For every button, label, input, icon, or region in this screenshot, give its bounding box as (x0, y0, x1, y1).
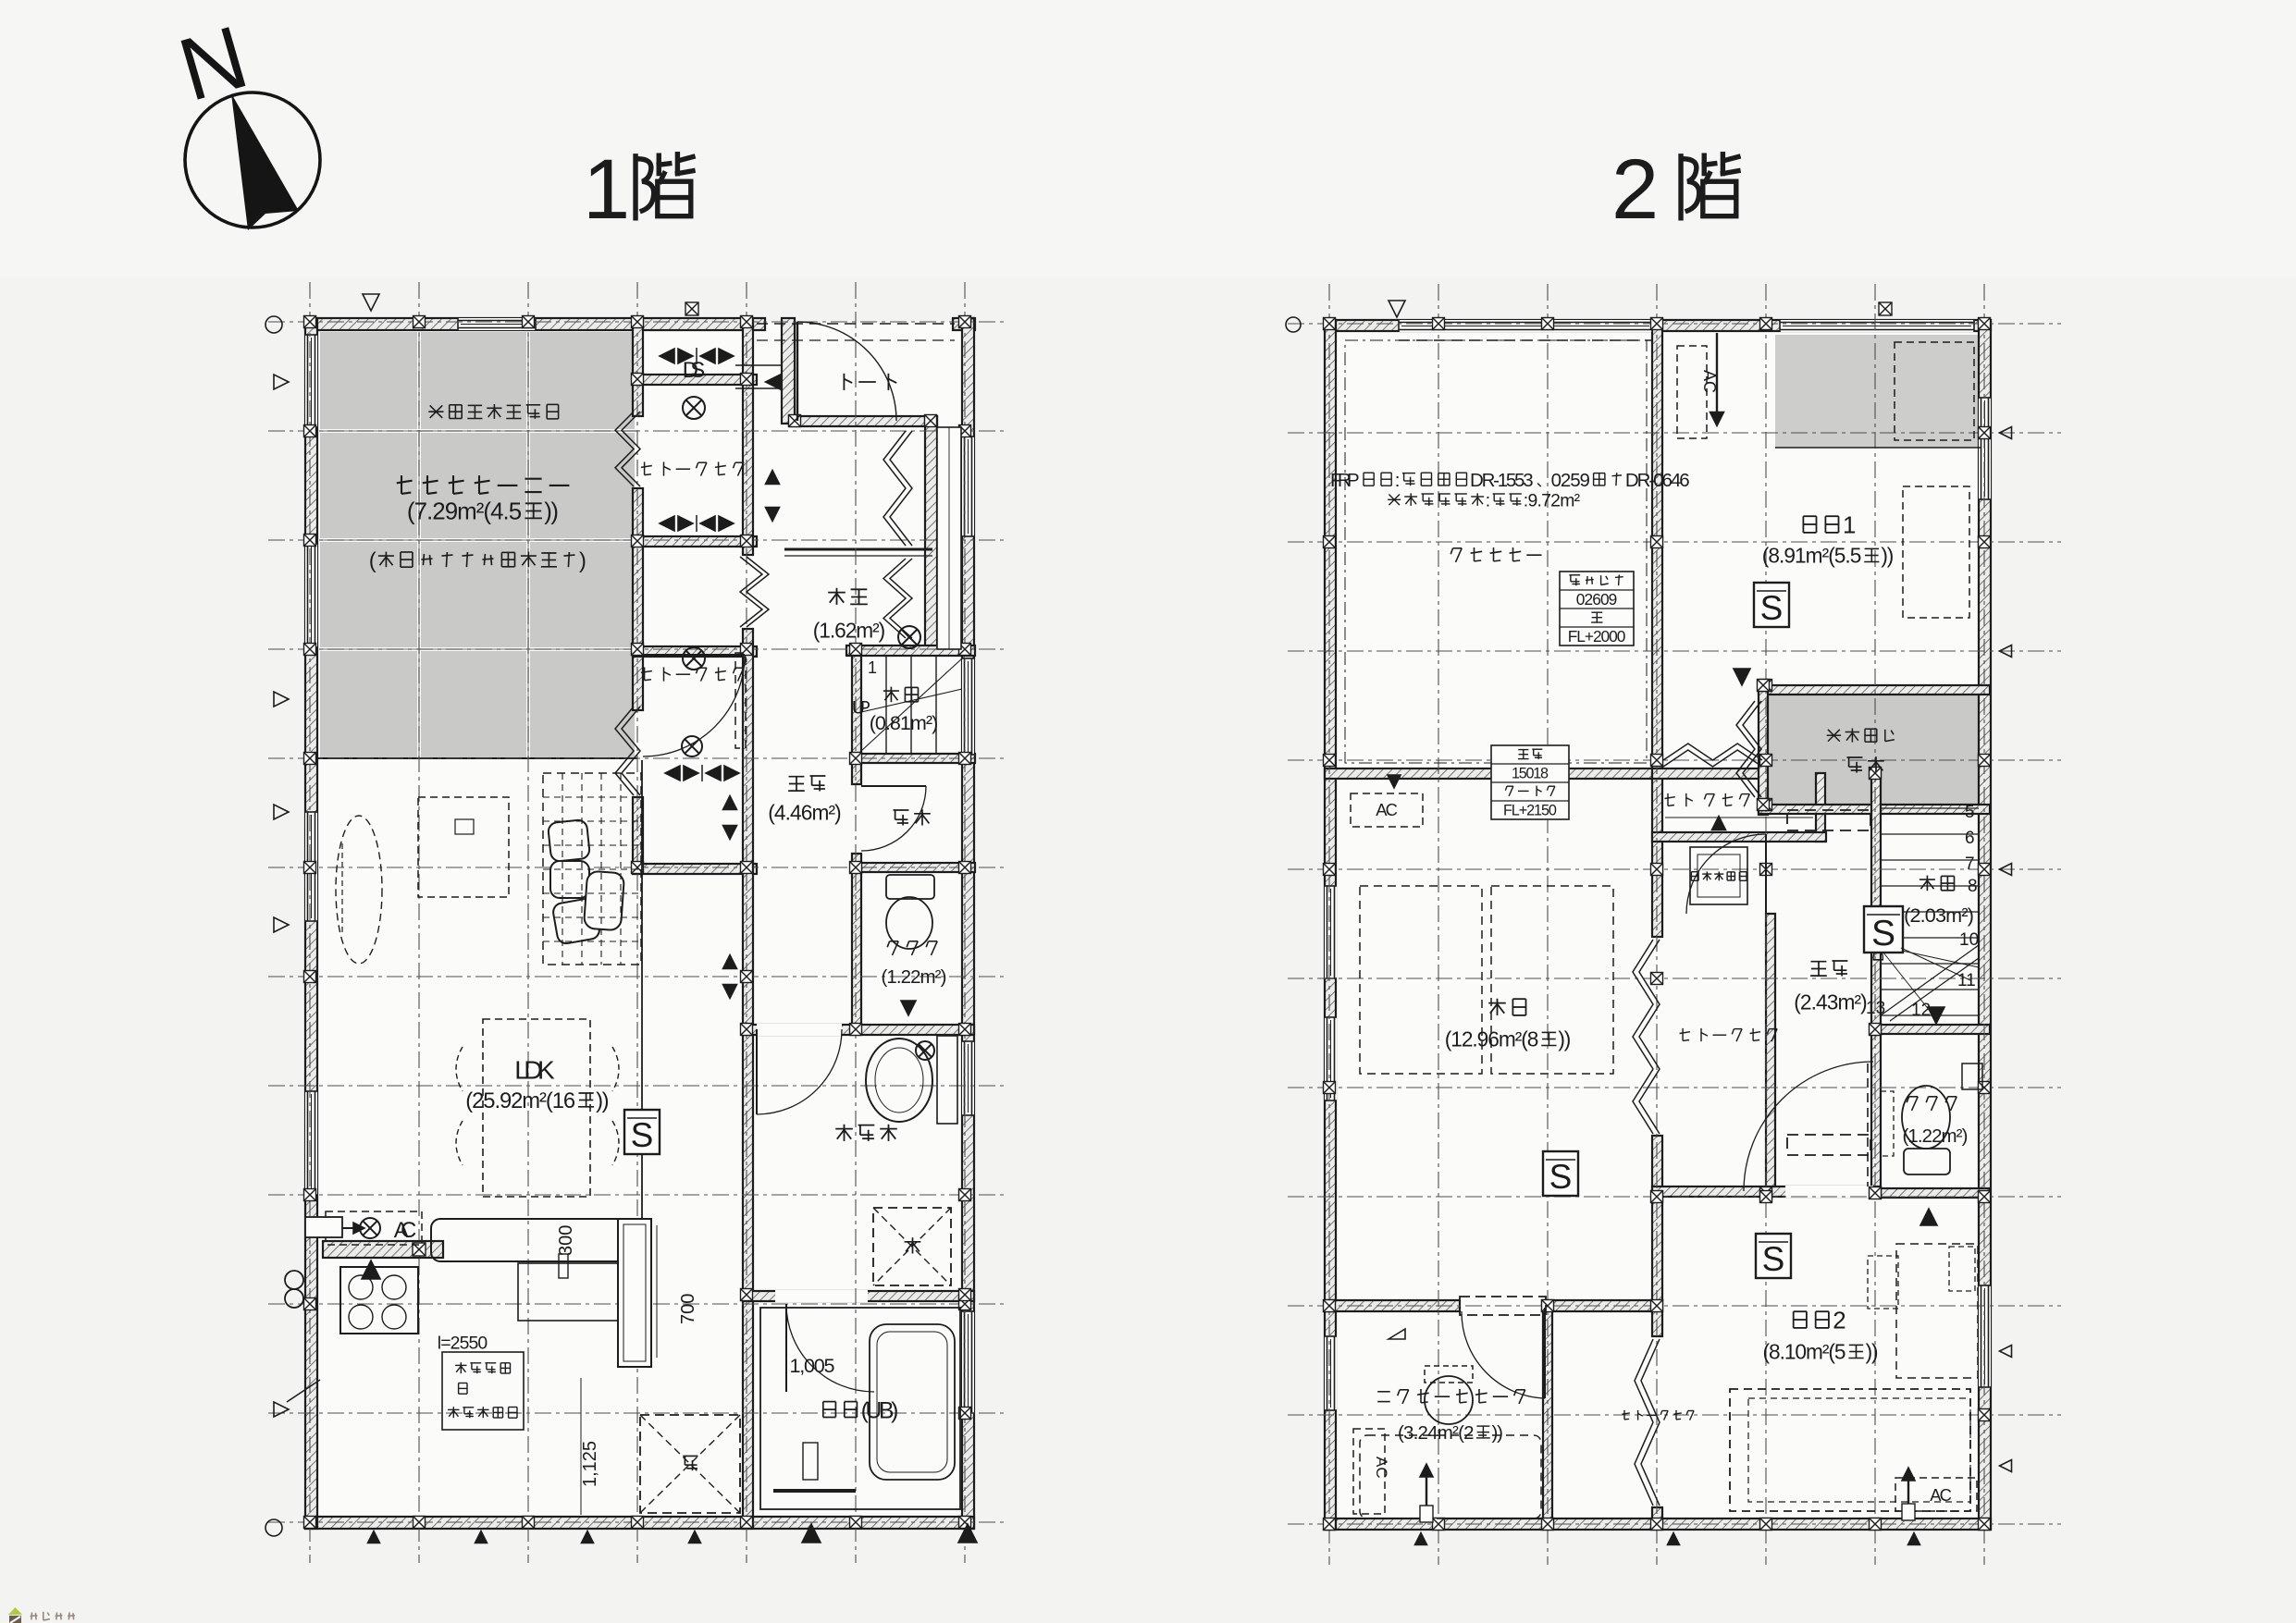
svg-text:S: S (1762, 1240, 1785, 1278)
svg-text::: : (1395, 470, 1401, 491)
svg-text:(0.81m²): (0.81m²) (870, 711, 939, 734)
svg-text:)): )) (544, 499, 559, 525)
svg-text:15018: 15018 (1512, 765, 1549, 781)
svg-text:(1.22m²): (1.22m²) (1903, 1125, 1969, 1147)
svg-text:FL+2150: FL+2150 (1503, 802, 1557, 818)
svg-text:S: S (631, 1116, 654, 1154)
svg-text:(25.92m²(16: (25.92m²(16 (465, 1088, 575, 1113)
svg-text:2: 2 (1833, 1309, 1845, 1334)
svg-text:FRP: FRP (1330, 470, 1360, 491)
svg-text:11: 11 (1957, 971, 1976, 990)
svg-text:0259: 0259 (1551, 470, 1590, 491)
svg-text:1: 1 (1843, 513, 1856, 539)
svg-text:FL+2000: FL+2000 (1568, 627, 1626, 646)
svg-text:7: 7 (1965, 855, 1975, 874)
svg-text:(UB): (UB) (861, 1398, 899, 1423)
svg-text::9.72m²: :9.72m² (1524, 491, 1581, 511)
svg-text:)): )) (1881, 544, 1894, 568)
svg-text:AC: AC (394, 1218, 417, 1243)
svg-text:(2.03m²): (2.03m²) (1904, 904, 1974, 927)
svg-text:DS: DS (683, 358, 706, 383)
svg-text:S: S (1549, 1158, 1573, 1196)
svg-text:)): )) (1558, 1027, 1571, 1051)
svg-text:5: 5 (1965, 803, 1975, 822)
svg-text:02609: 02609 (1576, 590, 1618, 609)
svg-text:A C: A C (1930, 1485, 1952, 1505)
svg-text:2: 2 (1611, 142, 1659, 237)
svg-text:12: 12 (1911, 1001, 1931, 1020)
svg-text:300: 300 (556, 1225, 576, 1256)
svg-text:1,125: 1,125 (580, 1441, 600, 1487)
svg-text:UP: UP (852, 698, 870, 719)
svg-text:LDK: LDK (514, 1055, 555, 1084)
svg-text:DR-0646: DR-0646 (1625, 470, 1690, 491)
svg-text:AC: AC (1373, 1457, 1390, 1479)
svg-text:(3.24m²(2: (3.24m²(2 (1398, 1422, 1475, 1444)
svg-text:(4.46m²): (4.46m²) (768, 801, 842, 825)
svg-text:A C: A C (1376, 800, 1398, 819)
svg-text:): ) (579, 548, 586, 573)
svg-text:1: 1 (583, 142, 630, 237)
svg-text:l=2550: l=2550 (438, 1334, 488, 1354)
svg-text:10: 10 (1959, 930, 1979, 950)
svg-text:(2.43m²): (2.43m²) (1794, 990, 1868, 1014)
svg-text:13: 13 (1866, 999, 1885, 1018)
svg-text:)): )) (1492, 1422, 1504, 1444)
svg-text:(8.10m²(5: (8.10m²(5 (1763, 1340, 1846, 1364)
svg-text:6: 6 (1965, 829, 1975, 848)
svg-text:)): )) (1866, 1340, 1879, 1364)
svg-text:S: S (1871, 914, 1895, 953)
svg-text:)): )) (596, 1088, 610, 1113)
svg-text:(: ( (369, 548, 376, 573)
svg-text:1,005: 1,005 (790, 1354, 835, 1377)
svg-text:(7.29m²(4.5: (7.29m²(4.5 (407, 499, 522, 525)
svg-text:8: 8 (1968, 877, 1978, 896)
svg-text::: : (1486, 491, 1490, 511)
svg-text:1: 1 (868, 658, 877, 677)
svg-text:700: 700 (678, 1294, 698, 1324)
svg-text:(8.91m²(5.5: (8.91m²(5.5 (1762, 544, 1862, 568)
svg-text:S: S (1760, 589, 1784, 627)
svg-text:(1.22m²): (1.22m²) (882, 966, 947, 988)
svg-text:DR-1553: DR-1553 (1470, 470, 1534, 491)
svg-text:(1.62m²): (1.62m²) (813, 619, 885, 643)
